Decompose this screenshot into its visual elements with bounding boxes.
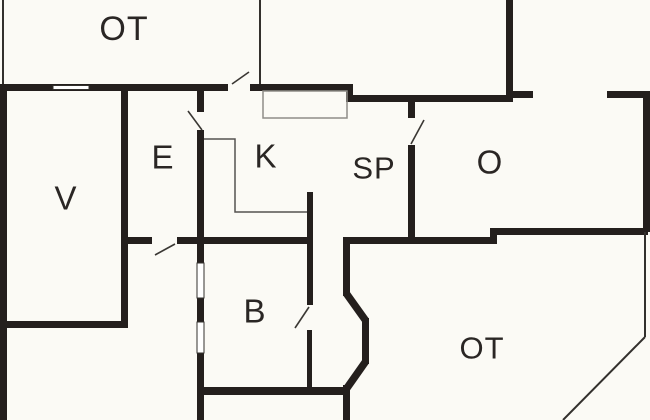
floor-plan: OT V E K SP O B OT (0, 0, 650, 420)
room-label-k-kitchen: K (254, 137, 277, 175)
room-label-ot-top: OT (99, 10, 148, 49)
room-label-b-bathroom: B (243, 292, 266, 330)
floor-plan-drawing (0, 0, 650, 420)
room-label-ot-bottom: OT (459, 331, 504, 367)
room-label-v-room: V (54, 179, 77, 217)
room-label-e-entrance: E (151, 138, 174, 176)
room-label-o-living-room: O (477, 143, 504, 181)
room-label-sp-room: SP (352, 151, 395, 187)
